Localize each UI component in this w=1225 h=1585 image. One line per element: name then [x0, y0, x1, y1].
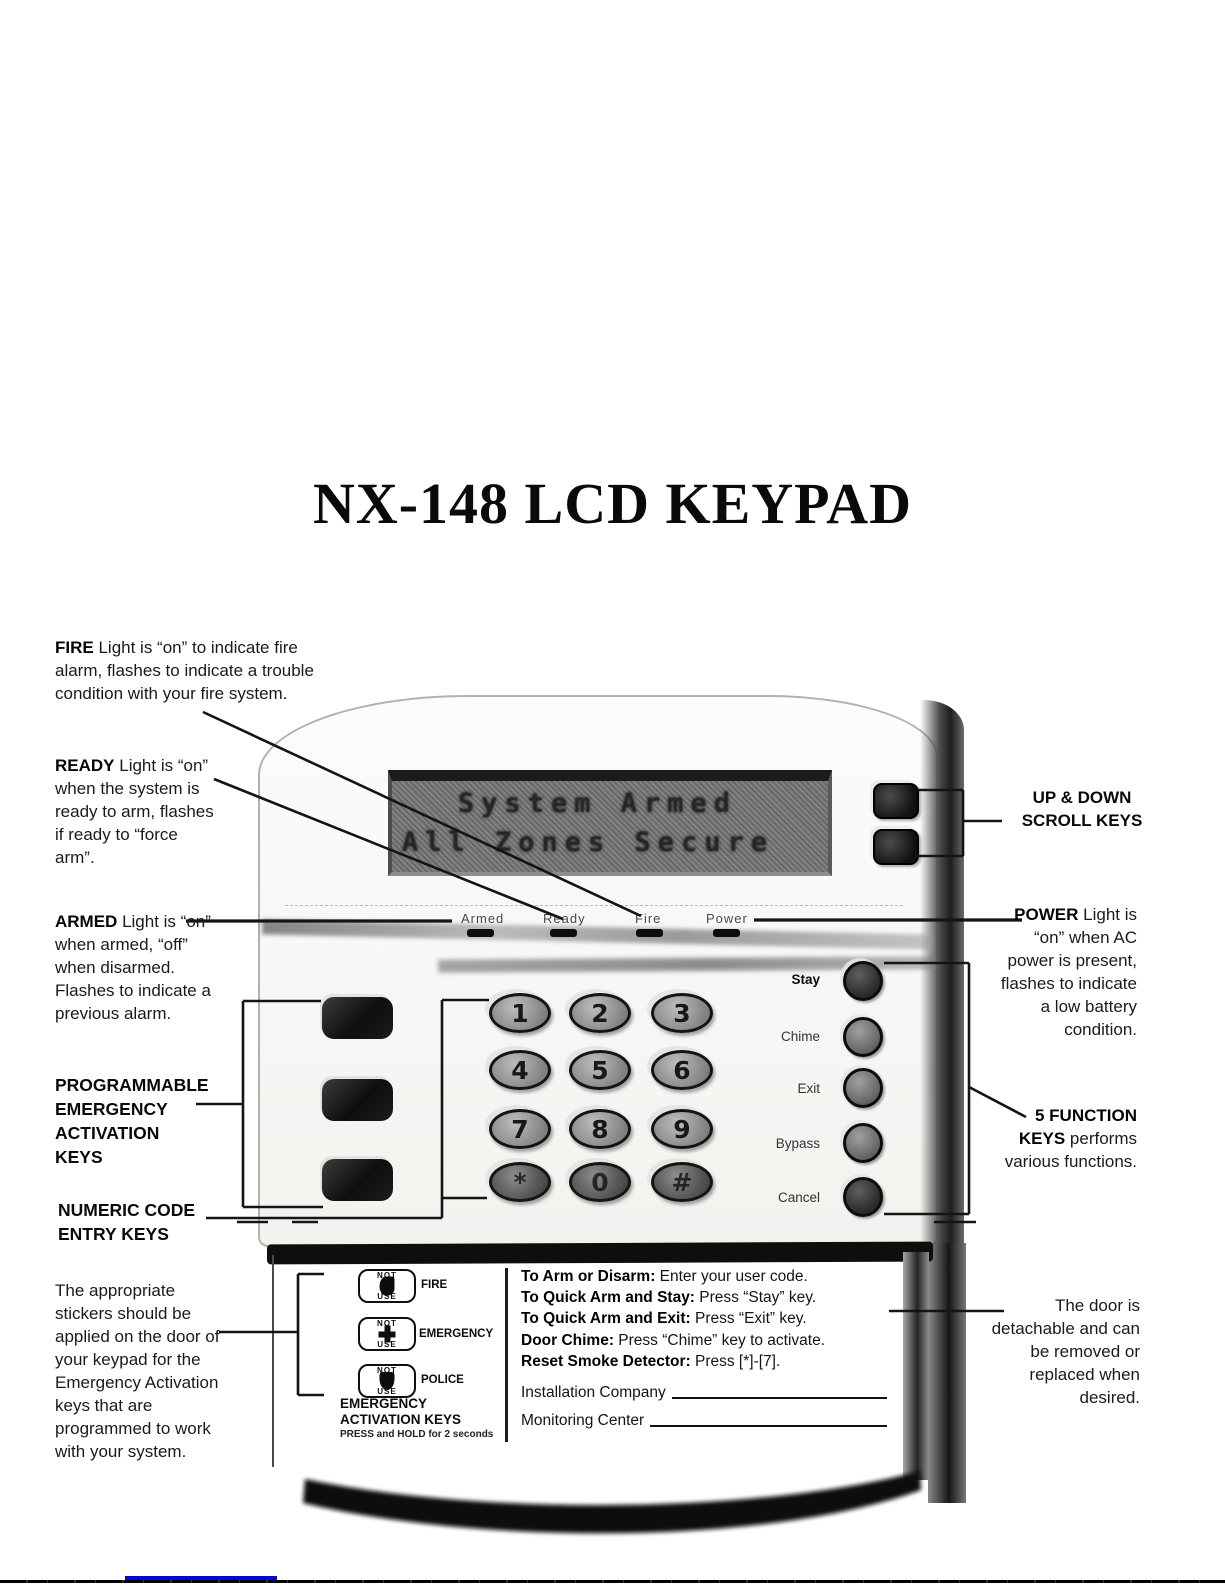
function-label-stay: Stay — [758, 972, 820, 987]
programmable-line: EMERGENCY — [55, 1097, 235, 1121]
lcd-line-2: All Zones Secure — [402, 827, 774, 858]
scroll-down-button — [873, 829, 919, 865]
door-instructions: To Arm or Disarm: Enter your user code. … — [521, 1266, 893, 1372]
programmable-line: ACTIVATION — [55, 1121, 235, 1145]
indicator-separator-line — [285, 905, 903, 906]
numeric-key-3: 3 — [651, 993, 713, 1033]
sticker-emergency: NOT USE — [358, 1317, 416, 1351]
numeric-key-5: 5 — [569, 1050, 631, 1090]
instruction-quick-arm-exit: To Quick Arm and Exit: Press “Exit” key. — [521, 1308, 893, 1329]
annotation-power-light: POWER Light is “on” when AC power is pre… — [995, 903, 1137, 1041]
annotation-power-text: Light is “on” when AC power is present, … — [1001, 905, 1137, 1039]
annotation-scroll-keys: UP & DOWN SCROLL KEYS — [1003, 786, 1161, 832]
page-title: NX-148 LCD KEYPAD — [0, 470, 1225, 537]
sticker-use-text: USE — [377, 1340, 396, 1349]
instruction-text: Enter your user code. — [655, 1268, 808, 1285]
annotation-power-lead: POWER — [1014, 905, 1078, 924]
instruction-text: Press “Chime” key to activate. — [614, 1332, 825, 1349]
programmable-line: KEYS — [55, 1145, 235, 1169]
emergency-activation-key-3 — [322, 1159, 393, 1201]
annotation-ready-lead: READY — [55, 756, 115, 775]
function-label-exit: Exit — [758, 1081, 820, 1096]
scroll-annotation-line: UP & DOWN — [1003, 786, 1161, 809]
programmable-line: PROGRAMMABLE — [55, 1073, 235, 1097]
numeric-key-7: 7 — [489, 1109, 551, 1149]
numeric-key-6: 6 — [651, 1050, 713, 1090]
instruction-label: To Arm or Disarm: — [521, 1268, 655, 1285]
lcd-line-1: System Armed — [458, 788, 737, 819]
annotation-fire-light: FIRE Light is “on” to indicate fire alar… — [55, 636, 347, 705]
monitoring-center-field: Monitoring Center — [521, 1412, 889, 1430]
fire-led — [636, 929, 663, 937]
annotation-function-keys: 5 FUNCTION KEYS performs various functio… — [995, 1104, 1137, 1173]
instruction-text: Press “Stay” key. — [695, 1289, 816, 1306]
numeric-line: ENTRY KEYS — [58, 1222, 218, 1246]
numeric-key-9: 9 — [651, 1109, 713, 1149]
function-key-bypass-button — [843, 1123, 883, 1163]
function-label-cancel: Cancel — [758, 1190, 820, 1205]
door-right-edge — [903, 1252, 929, 1480]
sticker-fire-label: FIRE — [421, 1279, 447, 1291]
sticker-not-text: NOT — [377, 1319, 397, 1328]
caption-line-2: ACTIVATION KEYS — [340, 1412, 493, 1428]
function-key-exit-button — [843, 1068, 883, 1108]
installation-company-blank-line — [672, 1397, 887, 1399]
door-divider-line — [505, 1268, 508, 1442]
page-bottom-scan-line — [0, 1580, 1225, 1583]
annotation-fire-lead: FIRE — [55, 638, 94, 657]
sticker-police: NOT USE — [358, 1364, 416, 1398]
sticker-use-text: USE — [377, 1387, 396, 1396]
power-led — [713, 929, 740, 937]
scroll-up-button — [873, 783, 919, 819]
sticker-fire: NOT USE — [358, 1269, 416, 1303]
annotation-door: The door is detachable and can be remove… — [988, 1294, 1140, 1409]
indicator-power-label: Power — [706, 911, 748, 926]
sticker-not-text: NOT — [377, 1366, 397, 1375]
instruction-text: Press [*]-[7]. — [691, 1353, 781, 1370]
installation-company-field: Installation Company — [521, 1384, 889, 1402]
annotation-stickers: The appropriate stickers should be appli… — [55, 1279, 223, 1463]
manual-page: NX-148 LCD KEYPAD System Armed All Zones… — [0, 0, 1225, 1585]
numeric-key-4: 4 — [489, 1050, 551, 1090]
caption-line-3: PRESS and HOLD for 2 seconds — [340, 1428, 493, 1441]
emergency-activation-key-1 — [322, 997, 393, 1039]
monitoring-center-blank-line — [650, 1425, 887, 1427]
annotation-programmable-keys: PROGRAMMABLE EMERGENCY ACTIVATION KEYS — [55, 1073, 235, 1169]
annotation-ready-light: READY Light is “on” when the system is r… — [55, 754, 218, 869]
instruction-text: Press “Exit” key. — [691, 1310, 807, 1327]
sticker-use-text: USE — [377, 1292, 396, 1301]
instruction-label: To Quick Arm and Exit: — [521, 1310, 691, 1327]
function-key-chime-button — [843, 1017, 883, 1057]
lcd-display: System Armed All Zones Secure — [388, 770, 832, 876]
annotation-fire-text: Light is “on” to indicate fire alarm, fl… — [55, 638, 314, 703]
instruction-door-chime: Door Chime: Press “Chime” key to activat… — [521, 1330, 893, 1351]
numeric-key-2: 2 — [569, 993, 631, 1033]
keypad-lower-right-shadow — [928, 1243, 966, 1503]
instruction-quick-arm-stay: To Quick Arm and Stay: Press “Stay” key. — [521, 1287, 893, 1308]
armed-led — [467, 929, 494, 937]
indicator-fire-label: Fire — [635, 911, 661, 926]
instruction-label: Reset Smoke Detector: — [521, 1353, 691, 1370]
annotation-armed-lead: ARMED — [55, 912, 117, 931]
numeric-key-pound: # — [651, 1162, 713, 1202]
instruction-label: To Quick Arm and Stay: — [521, 1289, 695, 1306]
scroll-annotation-line: SCROLL KEYS — [1003, 809, 1161, 832]
numeric-key-8: 8 — [569, 1109, 631, 1149]
indicator-armed-label: Armed — [461, 911, 504, 926]
door-left-edge — [272, 1255, 274, 1467]
sticker-emergency-label: EMERGENCY — [419, 1328, 493, 1340]
sticker-police-label: POLICE — [421, 1374, 464, 1386]
numeric-key-star: * — [489, 1162, 551, 1202]
emergency-activation-key-2 — [322, 1079, 393, 1121]
instruction-arm-disarm: To Arm or Disarm: Enter your user code. — [521, 1266, 893, 1287]
instruction-label: Door Chime: — [521, 1332, 614, 1349]
function-key-cancel-button — [843, 1177, 883, 1217]
monitoring-center-label: Monitoring Center — [521, 1412, 644, 1430]
instruction-reset-smoke: Reset Smoke Detector: Press [*]-[7]. — [521, 1351, 893, 1372]
door-top-band — [267, 1242, 933, 1265]
sticker-not-text: NOT — [377, 1271, 397, 1280]
function-key-stay-button — [843, 961, 883, 1001]
installation-company-label: Installation Company — [521, 1384, 666, 1402]
function-label-bypass: Bypass — [758, 1136, 820, 1151]
numeric-key-1: 1 — [489, 993, 551, 1033]
annotation-armed-light: ARMED Light is “on” when armed, “off” wh… — [55, 910, 227, 1025]
caption-line-1: EMERGENCY — [340, 1396, 493, 1412]
function-label-chime: Chime — [758, 1029, 820, 1044]
annotation-numeric-keys: NUMERIC CODE ENTRY KEYS — [58, 1198, 218, 1246]
emergency-activation-caption: EMERGENCY ACTIVATION KEYS PRESS and HOLD… — [340, 1396, 493, 1441]
numeric-key-0: 0 — [569, 1162, 631, 1202]
numeric-line: NUMERIC CODE — [58, 1198, 218, 1222]
keypad-right-shadow — [920, 700, 964, 1245]
ready-led — [550, 929, 577, 937]
indicator-ready-label: Ready — [543, 911, 586, 926]
